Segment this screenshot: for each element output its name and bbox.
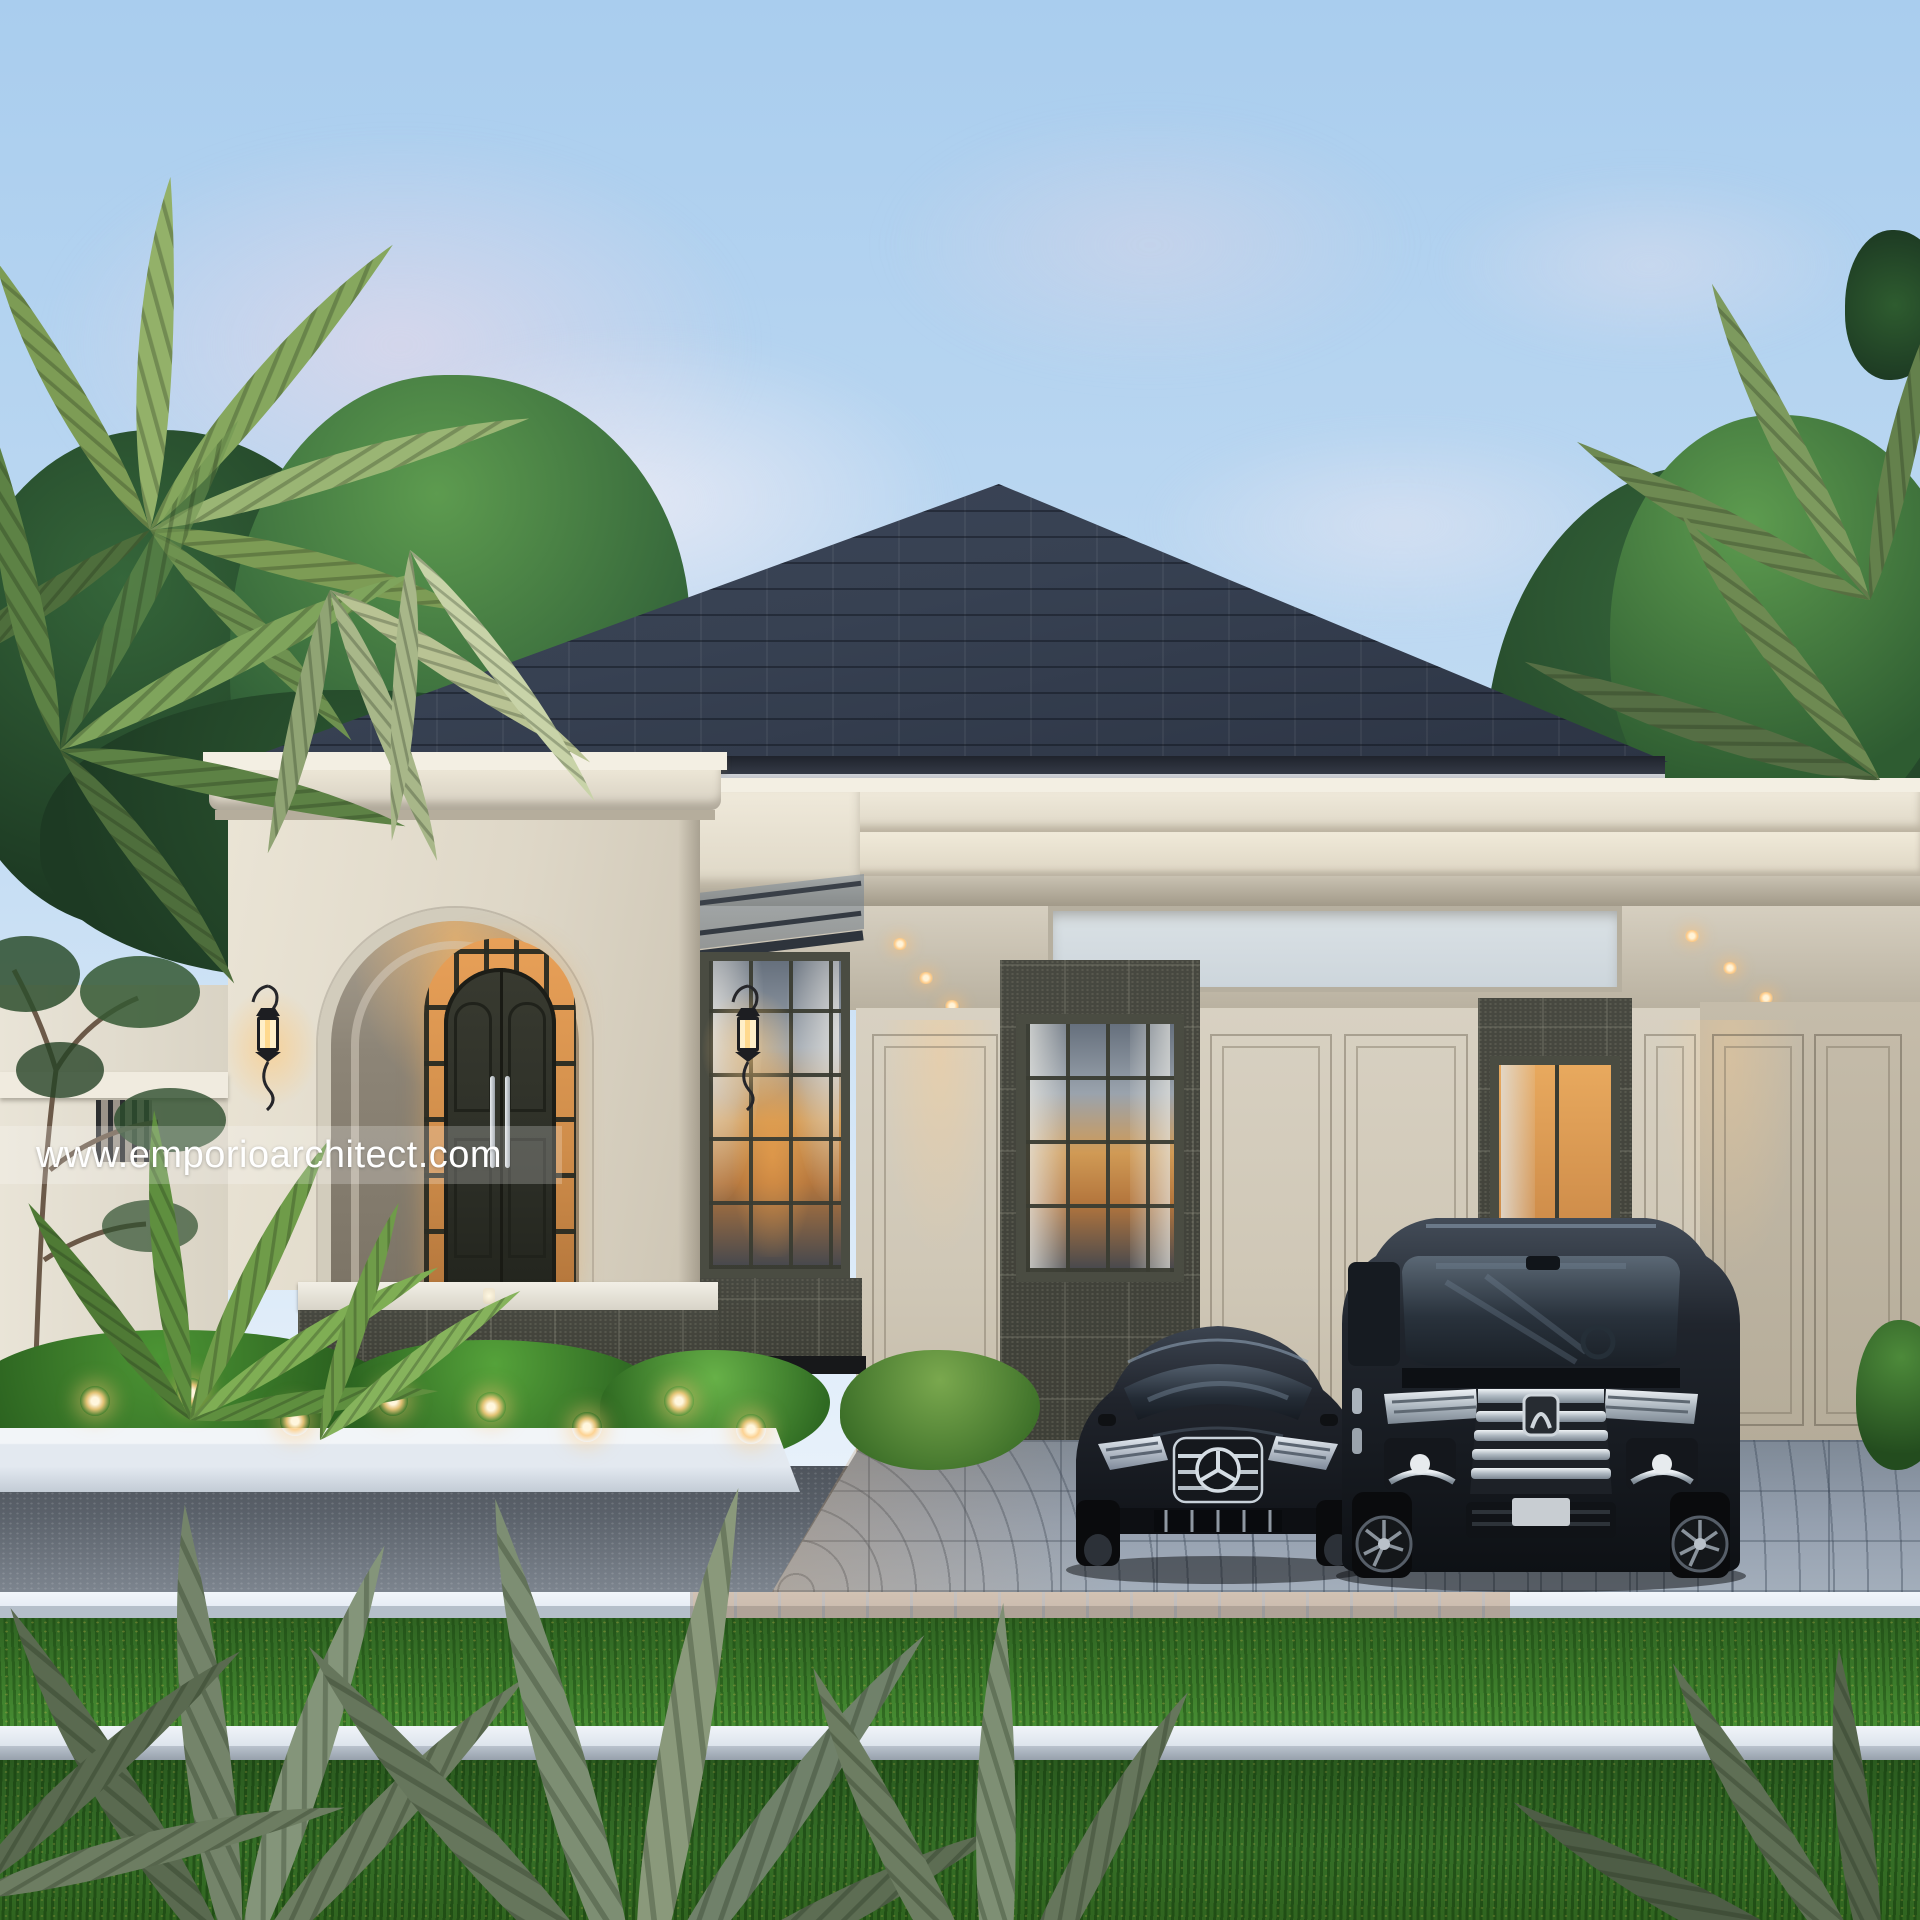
recessed-downlight <box>892 938 908 950</box>
porch-corner-shade <box>678 820 700 1290</box>
fan-palm-foliage <box>0 230 540 990</box>
recessed-downlight <box>1684 930 1700 942</box>
foreground-palm-fronds <box>0 1380 1920 1920</box>
recessed-downlight <box>918 972 934 984</box>
recessed-downlight <box>1722 962 1738 974</box>
wall-lantern-right <box>726 982 770 1112</box>
watermark-band: www.emporioarchitect.com <box>0 1126 562 1184</box>
cloud <box>880 110 1420 380</box>
door-panel <box>508 1002 546 1112</box>
architectural-render-scene: www.emporioarchitect.com <box>0 0 1920 1920</box>
window-mullions <box>1026 1024 1174 1272</box>
areca-palm-cluster <box>0 1020 460 1440</box>
right-palm-foliage <box>1680 300 1920 820</box>
step-light <box>483 1288 495 1304</box>
watermark-text: www.emporioarchitect.com <box>0 1134 502 1177</box>
carport-window <box>1016 1014 1184 1282</box>
